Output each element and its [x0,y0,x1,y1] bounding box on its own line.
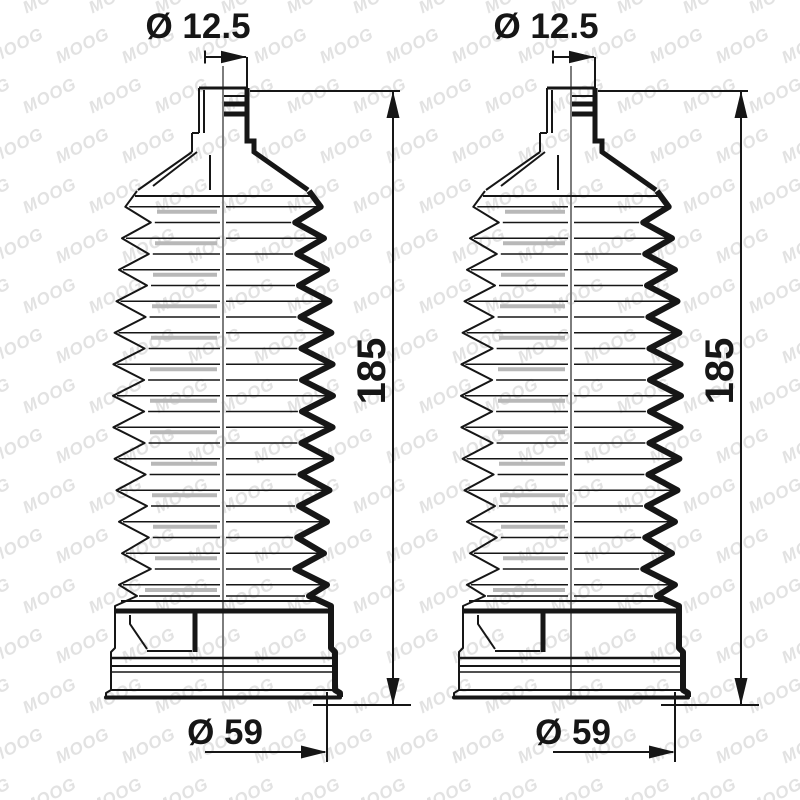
boot-outline [106,51,411,763]
technical-drawing: Ø 12.5 185 Ø 59 Ø 12.5 185 Ø 59 [0,0,800,800]
top-diameter-label: Ø 12.5 [493,7,598,46]
height-label: 185 [698,338,742,405]
page: MOOGMOOGMOOGMOOGMOOGMOOGMOOGMOOGMOOGMOOG… [0,0,800,800]
top-diameter-label: Ø 12.5 [145,7,250,46]
bellows-figure-right: Ø 12.5 185 Ø 59 [454,7,759,762]
bottom-diameter-label: Ø 59 [535,713,611,752]
bottom-diameter-label: Ø 59 [187,713,263,752]
bellows-figure-left: Ø 12.5 185 Ø 59 [106,7,411,762]
boot-outline [454,51,759,763]
height-label: 185 [350,338,394,405]
